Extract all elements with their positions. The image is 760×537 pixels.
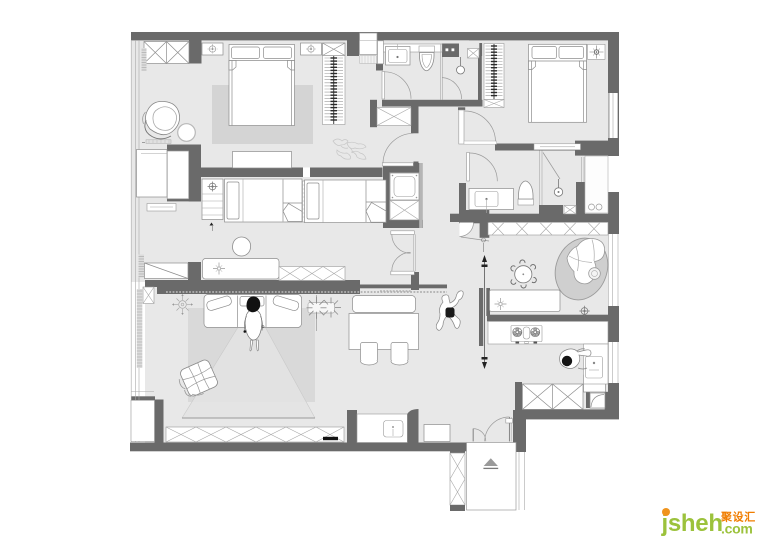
svg-text:聚设汇: 聚设汇 <box>720 510 756 524</box>
svg-text:jsheh: jsheh <box>661 510 723 537</box>
